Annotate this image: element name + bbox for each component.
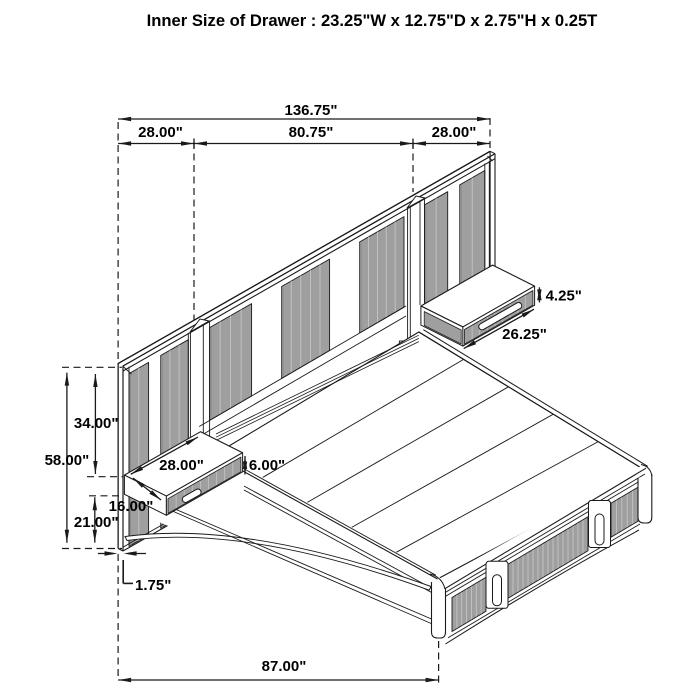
svg-text:Inner Size of Drawer : 23.25"W: Inner Size of Drawer : 23.25"W x 12.75"D… [147, 11, 598, 30]
svg-text:58.00": 58.00" [45, 452, 90, 469]
svg-text:80.75": 80.75" [289, 124, 334, 141]
svg-text:1.75": 1.75" [135, 577, 171, 594]
svg-text:136.75": 136.75" [285, 102, 338, 119]
svg-text:34.00": 34.00" [74, 415, 119, 432]
svg-text:4.25": 4.25" [546, 288, 582, 305]
svg-text:28.00": 28.00" [138, 124, 183, 141]
svg-text:21.00": 21.00" [74, 514, 119, 531]
svg-text:26.25": 26.25" [502, 326, 547, 343]
svg-text:6.00": 6.00" [249, 457, 285, 474]
svg-text:28.00": 28.00" [432, 124, 477, 141]
svg-text:16.00": 16.00" [109, 498, 154, 515]
svg-text:28.00": 28.00" [159, 457, 204, 474]
svg-text:87.00": 87.00" [262, 658, 307, 675]
